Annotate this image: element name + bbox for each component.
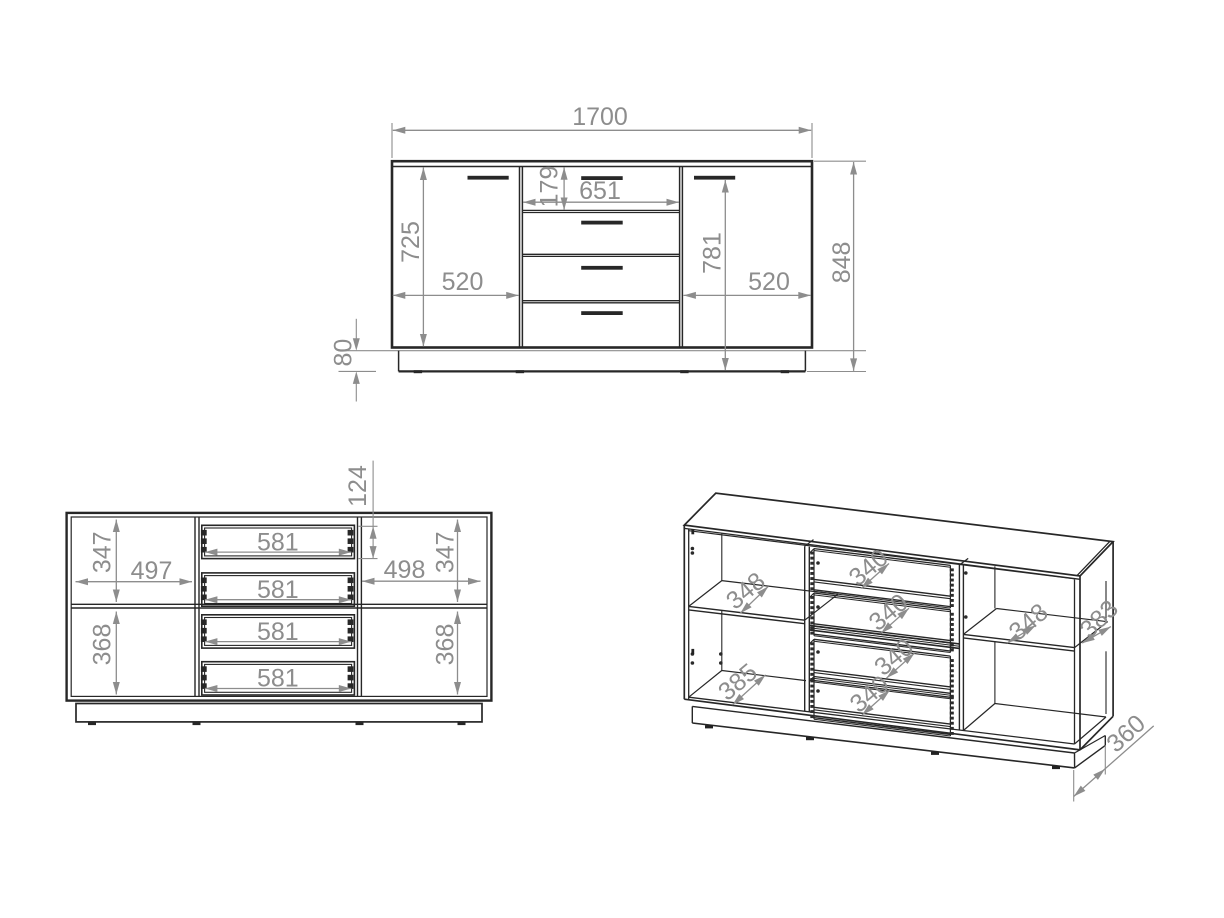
- svg-text:347: 347: [89, 531, 117, 573]
- svg-text:1700: 1700: [572, 103, 628, 131]
- svg-text:520: 520: [442, 268, 484, 296]
- svg-text:498: 498: [384, 556, 426, 584]
- svg-text:725: 725: [397, 221, 425, 263]
- svg-text:497: 497: [131, 557, 173, 585]
- svg-text:80: 80: [330, 339, 358, 367]
- svg-text:651: 651: [579, 177, 621, 205]
- svg-text:347: 347: [431, 531, 459, 573]
- svg-text:520: 520: [748, 268, 790, 296]
- svg-text:848: 848: [828, 242, 856, 284]
- svg-text:368: 368: [89, 624, 117, 666]
- svg-text:368: 368: [431, 624, 459, 666]
- svg-text:179: 179: [536, 166, 564, 208]
- svg-text:781: 781: [698, 232, 726, 274]
- svg-text:124: 124: [344, 465, 372, 507]
